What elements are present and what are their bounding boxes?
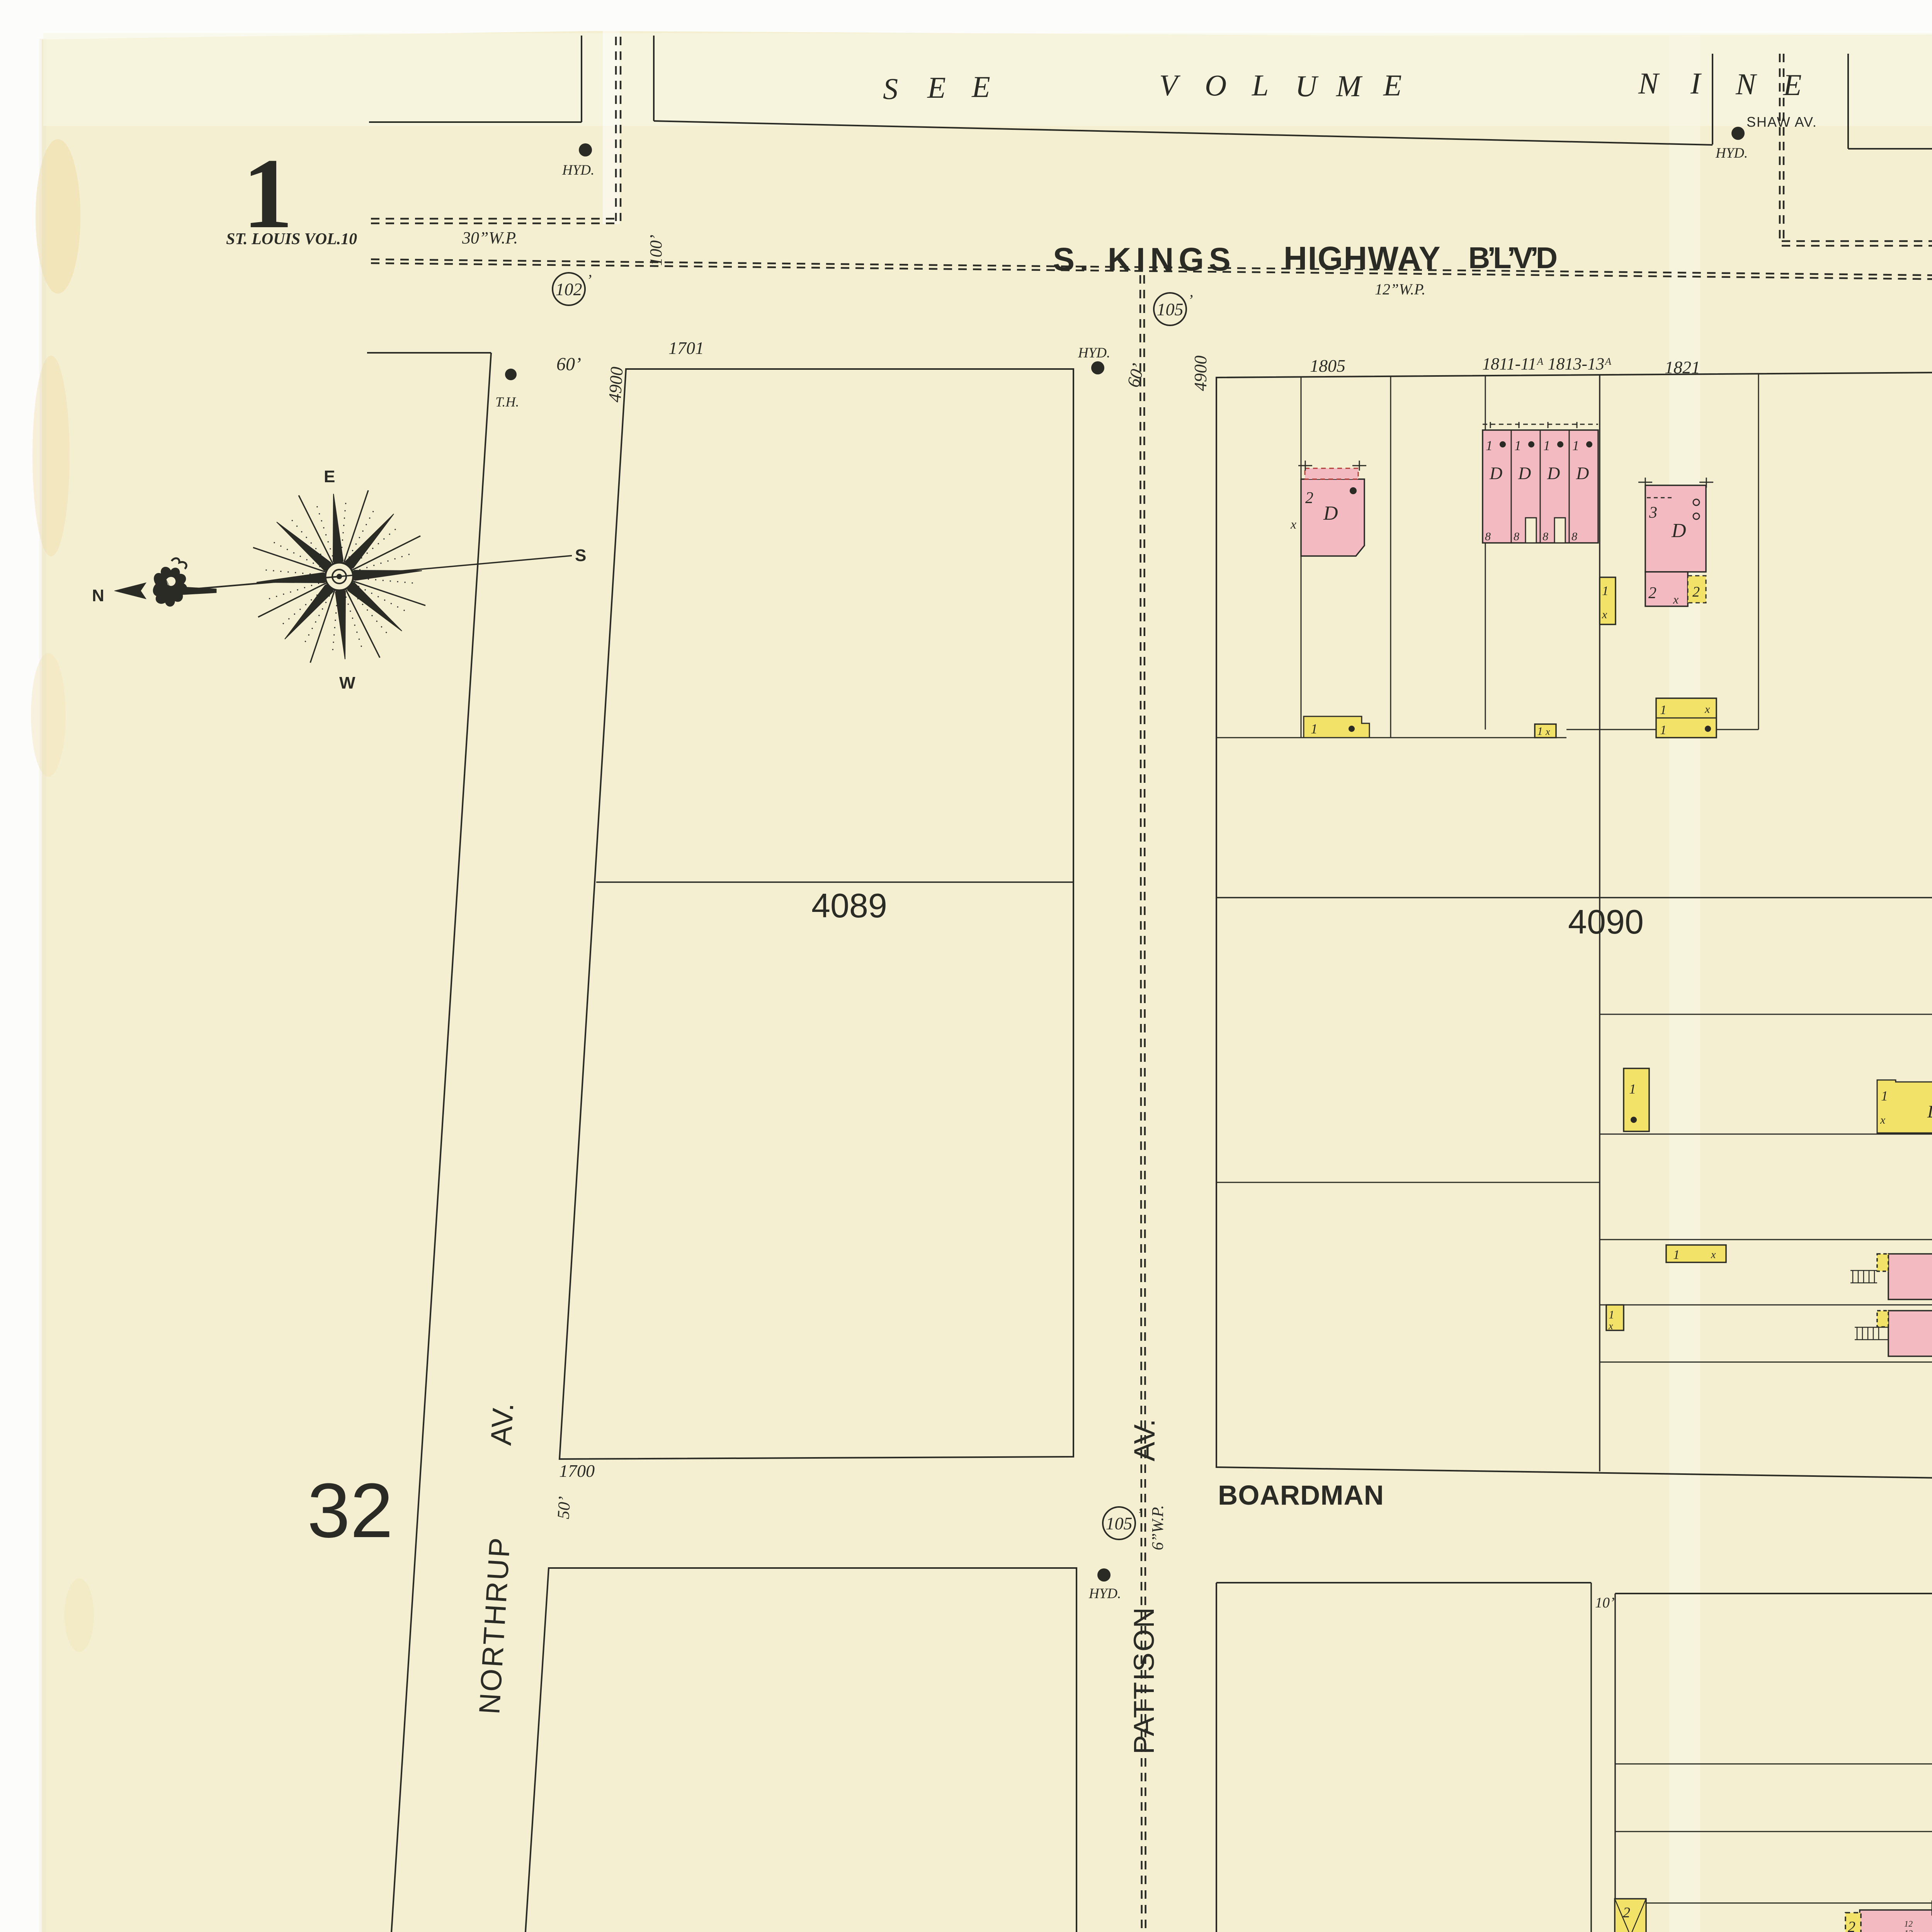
svg-text:50’: 50’ [554, 1496, 574, 1520]
svg-text:I: I [1690, 66, 1702, 100]
svg-text:S. KINGS: S. KINGS [1053, 241, 1236, 277]
svg-text:E: E [971, 70, 990, 104]
svg-text:x: x [1673, 592, 1679, 606]
svg-text:8: 8 [1543, 530, 1548, 543]
svg-text:AV.: AV. [1128, 1419, 1161, 1461]
svg-text:V: V [1159, 68, 1181, 102]
svg-text:U: U [1295, 69, 1319, 103]
svg-text:32: 32 [307, 1468, 393, 1554]
svg-text:102: 102 [556, 279, 582, 299]
svg-text:PATTISON: PATTISON [1128, 1606, 1160, 1754]
svg-text:1: 1 [1673, 1248, 1680, 1262]
svg-text:x: x [1290, 517, 1296, 532]
svg-text:12: 12 [1904, 1928, 1913, 1932]
svg-text:x: x [1880, 1114, 1886, 1126]
svg-text:1: 1 [1881, 1088, 1888, 1104]
svg-text:12”W.P.: 12”W.P. [1375, 281, 1425, 298]
svg-text:W: W [339, 673, 355, 692]
svg-text:BOARDMAN: BOARDMAN [1218, 1480, 1384, 1511]
svg-text:2: 2 [1305, 489, 1313, 507]
svg-text:D: D [1671, 520, 1686, 542]
svg-text:B’L’V’D: B’L’V’D [1468, 241, 1557, 275]
svg-text:E: E [324, 467, 335, 486]
svg-text:M: M [1336, 69, 1363, 103]
svg-text:1700: 1700 [559, 1461, 595, 1481]
svg-text:100’: 100’ [646, 235, 665, 266]
svg-text:1805: 1805 [1310, 356, 1345, 376]
svg-text:1: 1 [1543, 438, 1550, 453]
svg-text:10’: 10’ [1595, 1595, 1615, 1611]
svg-text:2: 2 [1848, 1918, 1855, 1932]
svg-text:12: 12 [1904, 1919, 1913, 1929]
svg-text:105: 105 [1157, 299, 1184, 319]
svg-text:O: O [1205, 68, 1226, 102]
svg-text:1: 1 [1660, 703, 1667, 717]
svg-text:N: N [1735, 67, 1757, 101]
svg-text:AV.: AV. [485, 1402, 520, 1446]
svg-text:1: 1 [1609, 1308, 1614, 1321]
svg-text:x: x [1608, 1320, 1613, 1332]
svg-text:x: x [1711, 1249, 1716, 1261]
svg-text:2: 2 [1692, 584, 1700, 600]
svg-text:’: ’ [1137, 1505, 1142, 1523]
svg-text:1: 1 [1629, 1081, 1636, 1097]
svg-text:D: D [1547, 463, 1560, 483]
svg-text:4090: 4090 [1568, 903, 1644, 941]
svg-text:1: 1 [1486, 438, 1493, 453]
svg-text:SHAW AV.: SHAW AV. [1747, 114, 1817, 130]
svg-text:x: x [1602, 608, 1607, 621]
svg-text:8: 8 [1514, 530, 1519, 543]
svg-text:HYD.: HYD. [1088, 1586, 1121, 1602]
svg-text:T.H.: T.H. [495, 394, 519, 410]
svg-text:E: E [927, 71, 946, 104]
svg-text:ST. LOUIS VOL.10: ST. LOUIS VOL.10 [226, 230, 357, 248]
svg-text:4089: 4089 [811, 886, 887, 925]
svg-text:1: 1 [1660, 723, 1667, 737]
svg-text:2: 2 [1623, 1905, 1630, 1921]
svg-text:1821: 1821 [1665, 357, 1700, 377]
svg-text:’: ’ [587, 271, 592, 289]
svg-text:8: 8 [1571, 530, 1577, 543]
svg-text:D: D [1927, 1102, 1932, 1121]
svg-text:E: E [1383, 68, 1402, 102]
svg-text:4900: 4900 [1190, 355, 1210, 391]
svg-text:x: x [1704, 703, 1710, 716]
svg-text:D: D [1323, 502, 1338, 524]
svg-text:105: 105 [1106, 1514, 1133, 1533]
svg-text:1811-11ᴬ 1813-13ᴬ: 1811-11ᴬ 1813-13ᴬ [1482, 354, 1611, 373]
svg-text:1: 1 [1572, 438, 1579, 453]
svg-text:L: L [1252, 68, 1269, 102]
svg-text:1: 1 [1537, 725, 1543, 738]
svg-text:x: x [1545, 726, 1550, 737]
svg-text:60’: 60’ [556, 354, 581, 374]
svg-text:1701: 1701 [668, 338, 704, 358]
svg-text:S: S [883, 72, 898, 105]
svg-text:HYD.: HYD. [1078, 345, 1110, 361]
svg-text:’: ’ [1188, 291, 1193, 309]
svg-text:HYD.: HYD. [562, 162, 594, 178]
svg-text:N: N [1638, 66, 1660, 100]
svg-text:HYD.: HYD. [1715, 145, 1748, 161]
svg-text:3: 3 [1649, 504, 1657, 522]
svg-text:D: D [1489, 463, 1502, 483]
svg-text:8: 8 [1485, 530, 1491, 543]
svg-text:S: S [575, 546, 586, 565]
svg-text:1: 1 [1602, 584, 1609, 598]
svg-text:D: D [1518, 463, 1531, 483]
svg-text:6”W.P.: 6”W.P. [1149, 1505, 1167, 1550]
svg-text:HIGHWAY: HIGHWAY [1284, 240, 1441, 276]
svg-text:30”W.P.: 30”W.P. [462, 228, 518, 247]
svg-text:D: D [1576, 463, 1589, 483]
svg-text:4900: 4900 [605, 366, 627, 403]
svg-text:2: 2 [1648, 584, 1656, 602]
svg-text:1: 1 [1514, 438, 1521, 453]
svg-text:E: E [1783, 68, 1802, 102]
svg-text:N: N [92, 586, 104, 605]
svg-text:1: 1 [1311, 721, 1318, 736]
